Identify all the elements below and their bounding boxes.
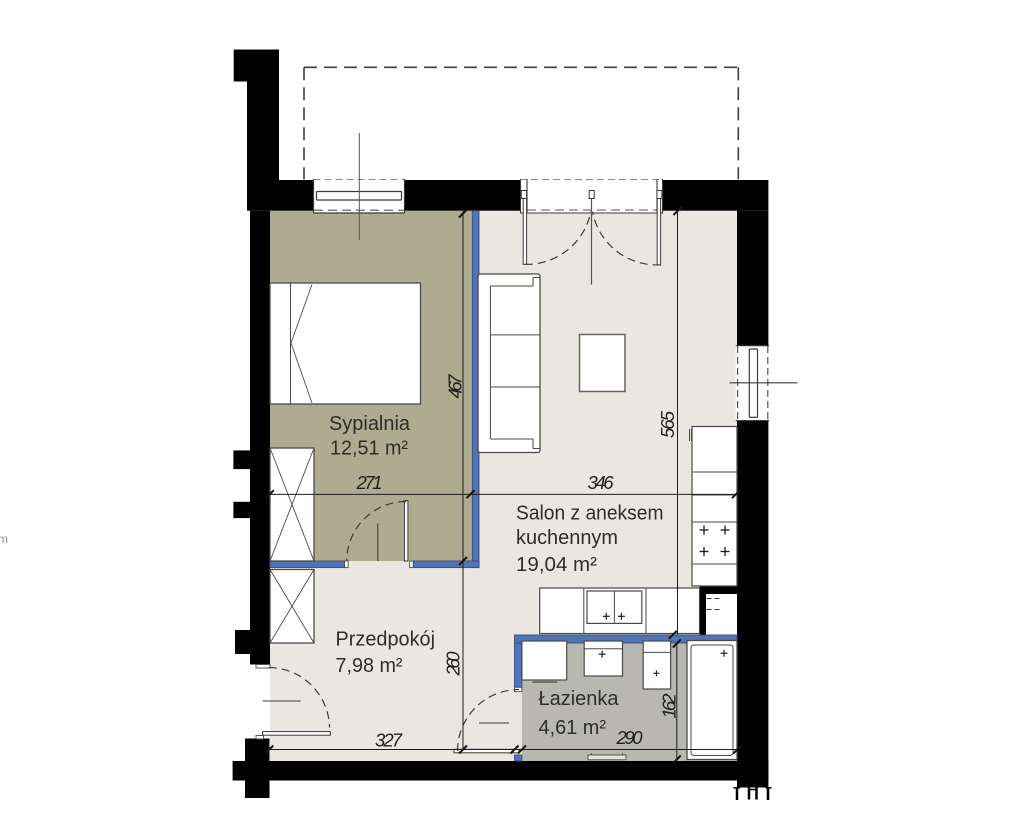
svg-text:271: 271 [356,472,383,493]
svg-text:Łazienka: Łazienka [539,688,620,710]
svg-text:7,98 m²: 7,98 m² [336,655,403,677]
svg-text:565: 565 [657,410,678,438]
svg-text:162: 162 [658,693,679,719]
svg-text:467: 467 [445,374,466,399]
svg-text:260: 260 [443,651,464,677]
svg-text:12,51 m²: 12,51 m² [330,437,408,459]
svg-text:Salon z aneksem: Salon z aneksem [516,503,664,525]
svg-text:19,04 m²: 19,04 m² [516,554,597,576]
svg-text:Przedpokój: Przedpokój [336,629,436,651]
svg-text:327: 327 [375,730,403,751]
svg-text:346: 346 [588,472,615,493]
svg-text:m: m [0,532,8,546]
svg-text:4,61 m²: 4,61 m² [539,717,607,739]
svg-text:kuchennym: kuchennym [516,527,618,549]
svg-text:290: 290 [616,727,644,748]
svg-text:Sypialnia: Sypialnia [329,413,411,435]
